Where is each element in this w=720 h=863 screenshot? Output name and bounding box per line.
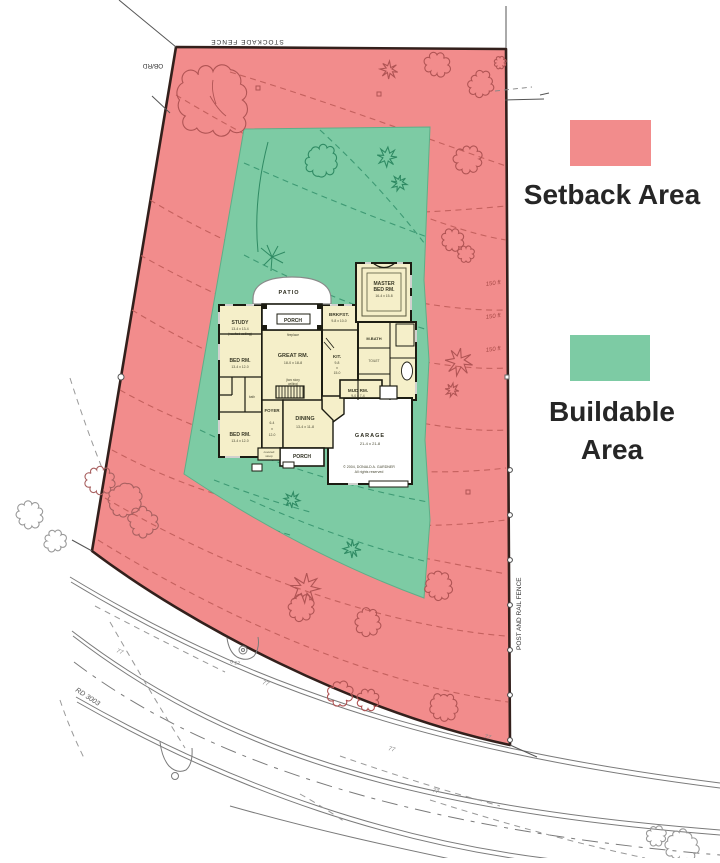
- svg-text:bath: bath: [249, 395, 255, 399]
- svg-text:OB/RD: OB/RD: [142, 62, 163, 69]
- svg-text:GREAT RM.: GREAT RM.: [278, 353, 309, 359]
- svg-text:x: x: [271, 427, 273, 431]
- svg-text:STOCKADE FENCE: STOCKADE FENCE: [210, 38, 283, 45]
- svg-text:13-4 x 13-4: 13-4 x 13-4: [231, 327, 248, 331]
- svg-text:x: x: [336, 366, 338, 370]
- svg-text:POST AND RAIL FENCE: POST AND RAIL FENCE: [516, 577, 523, 650]
- svg-text:© 2004, DONALD A. GARDNER: © 2004, DONALD A. GARDNER: [343, 465, 395, 469]
- svg-text:Setback Area: Setback Area: [524, 179, 701, 210]
- svg-text:Buildable: Buildable: [549, 396, 675, 427]
- svg-text:PORCH: PORCH: [284, 318, 302, 324]
- svg-text:stoop: stoop: [265, 454, 273, 458]
- svg-text:PATIO: PATIO: [279, 290, 300, 296]
- svg-text:BED RM.: BED RM.: [229, 358, 251, 364]
- svg-text:M.BATH: M.BATH: [366, 336, 381, 341]
- svg-text:FOYER: FOYER: [264, 408, 280, 413]
- svg-text:GARAGE: GARAGE: [355, 433, 385, 439]
- svg-text:ceiling): ceiling): [288, 382, 298, 386]
- svg-text:15-0: 15-0: [334, 371, 341, 375]
- svg-text:PORCH: PORCH: [293, 454, 311, 460]
- svg-text:21-4 x 21-8: 21-4 x 21-8: [360, 441, 381, 446]
- svg-text:BED RM.: BED RM.: [373, 287, 395, 293]
- svg-text:16-4 x 15-8: 16-4 x 15-8: [375, 294, 392, 298]
- svg-text:13-4 x 12-0: 13-4 x 12-0: [231, 365, 248, 369]
- svg-text:fireplace: fireplace: [287, 333, 299, 337]
- svg-text:STUDY: STUDY: [232, 320, 250, 326]
- svg-text:All rights reserved: All rights reserved: [355, 470, 384, 474]
- svg-text:BED RM.: BED RM.: [229, 432, 251, 438]
- svg-text:DINING: DINING: [295, 416, 314, 422]
- svg-text:18-0 x 18-8: 18-0 x 18-8: [284, 361, 302, 365]
- svg-text:12-0: 12-0: [269, 433, 276, 437]
- svg-text:13-4 x 11-8: 13-4 x 11-8: [296, 425, 314, 429]
- svg-text:13-4 x 12-0: 13-4 x 12-0: [231, 439, 248, 443]
- svg-text:Area: Area: [581, 434, 644, 465]
- svg-text:TOILET: TOILET: [368, 359, 379, 363]
- svg-text:9-8: 9-8: [335, 361, 340, 365]
- svg-text:BRKFST.: BRKFST.: [329, 312, 349, 318]
- svg-text:KIT.: KIT.: [333, 354, 341, 359]
- svg-text:9-8 x 10-0: 9-8 x 10-0: [331, 319, 346, 323]
- svg-text:6-4: 6-4: [270, 421, 275, 425]
